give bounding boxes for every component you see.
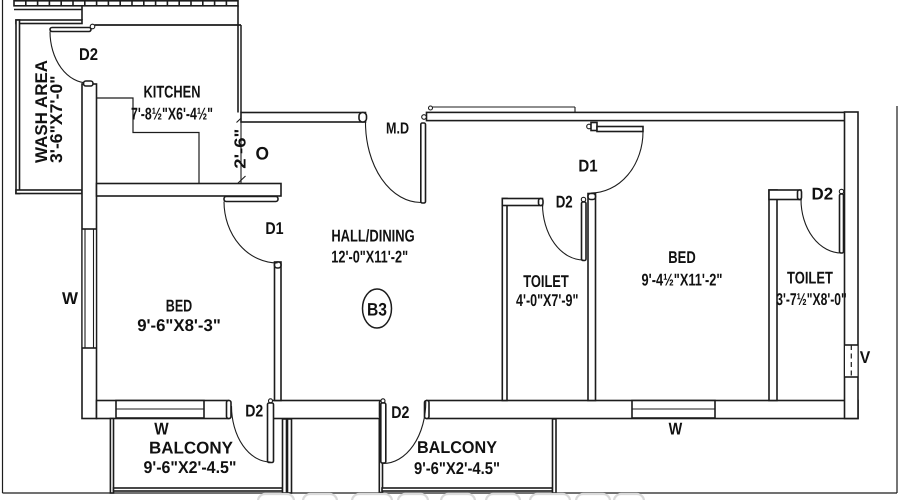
- svg-text:D1: D1: [578, 157, 597, 176]
- svg-text:HALL/DINING: HALL/DINING: [331, 226, 414, 245]
- svg-text:9'-6"X2'-4.5": 9'-6"X2'-4.5": [414, 459, 500, 478]
- svg-text:W: W: [154, 420, 169, 439]
- svg-text:W: W: [62, 289, 79, 308]
- svg-text:W: W: [669, 420, 683, 439]
- svg-text:TOILET: TOILET: [787, 268, 833, 287]
- svg-text:3'-7½"X8'-0": 3'-7½"X8'-0": [776, 290, 847, 309]
- svg-text:D2: D2: [79, 45, 98, 64]
- svg-text:4'-0"X7'-9": 4'-0"X7'-9": [516, 291, 578, 310]
- svg-text:BALCONY: BALCONY: [149, 439, 234, 458]
- svg-text:BED: BED: [166, 297, 192, 316]
- svg-text:TOILET: TOILET: [523, 272, 569, 291]
- svg-text:D2: D2: [812, 185, 834, 204]
- svg-text:KITCHEN: KITCHEN: [144, 83, 201, 102]
- svg-text:BALCONY: BALCONY: [417, 438, 498, 457]
- svg-text:9'-6"X8'-3": 9'-6"X8'-3": [137, 316, 221, 335]
- svg-text:O: O: [256, 143, 270, 163]
- svg-text:D2: D2: [245, 402, 263, 421]
- svg-text:9'-6"X2'-4.5": 9'-6"X2'-4.5": [144, 458, 237, 477]
- svg-text:2'-6": 2'-6": [233, 129, 250, 169]
- svg-text:BED: BED: [668, 248, 695, 267]
- svg-text:V: V: [860, 348, 871, 367]
- svg-text:12'-0"X11'-2": 12'-0"X11'-2": [331, 248, 408, 267]
- svg-text:3'-6"X7'-0": 3'-6"X7'-0": [47, 75, 66, 163]
- svg-text:B3: B3: [367, 300, 387, 320]
- svg-text:M.D: M.D: [386, 120, 409, 137]
- svg-text:D2: D2: [391, 403, 409, 422]
- svg-text:D1: D1: [265, 219, 283, 238]
- svg-text:7'-8½"X6'-4½": 7'-8½"X6'-4½": [131, 105, 213, 124]
- svg-text:D2: D2: [556, 192, 573, 211]
- svg-text:9'-4½"X11'-2": 9'-4½"X11'-2": [642, 271, 723, 290]
